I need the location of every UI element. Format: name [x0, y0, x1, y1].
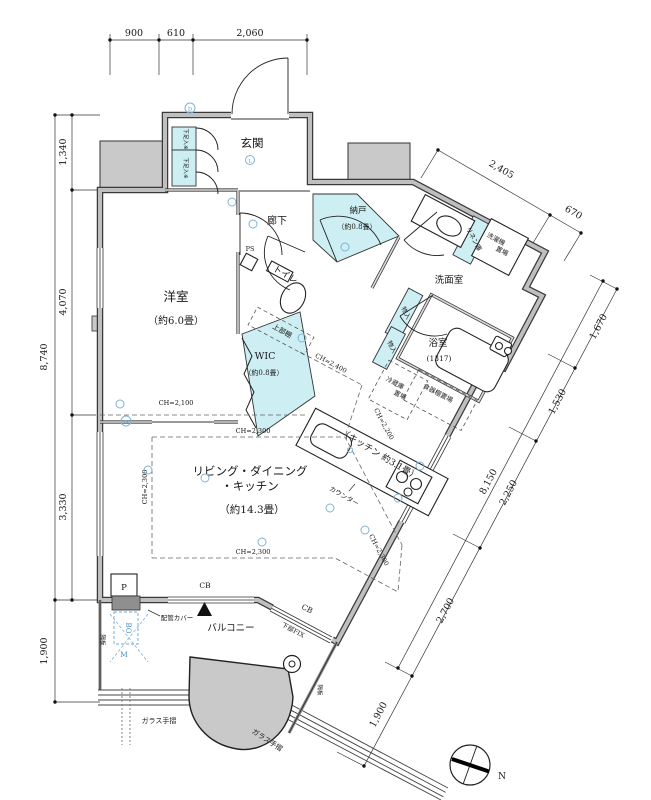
- dim-left-bottom: 1,900: [39, 637, 50, 664]
- label-yoshitsu-size: （約6.0畳）: [148, 314, 204, 327]
- label-shoe-2: 下足入※: [182, 157, 189, 179]
- label-ch-ldk-top: CH=2,300: [236, 427, 271, 435]
- label-yoshitsu: 洋室: [163, 289, 188, 304]
- pipe-cover-leader: [148, 610, 160, 616]
- label-m: M: [120, 650, 128, 659]
- label-p: P: [121, 583, 127, 593]
- dim-left-seg1: 1,340: [58, 138, 69, 165]
- column-block: [100, 141, 163, 190]
- compass-needle: [452, 759, 489, 772]
- pipe-cover-block: [112, 596, 140, 610]
- dim-top-2: 610: [167, 28, 185, 39]
- compass-north: N: [498, 772, 506, 782]
- label-pipe-cover: 配管カバー: [161, 613, 194, 622]
- label-bo: BO: [124, 622, 132, 633]
- burner: [404, 488, 412, 496]
- label-senmen: 洗面室: [435, 274, 464, 286]
- balcony-column: [189, 657, 293, 750]
- label-wic-size: （約0.8畳）: [244, 368, 283, 377]
- label-yokushitsu: 浴室: [428, 337, 447, 349]
- label-nando: 納戸: [349, 205, 366, 216]
- bath-control: [496, 343, 503, 350]
- dim-right-seg3: 2,250: [498, 478, 520, 507]
- label-ps: PS: [246, 245, 255, 253]
- label-rouka: 廊下: [267, 214, 287, 227]
- bath-control: [505, 348, 512, 355]
- balcony-knob: [284, 656, 301, 673]
- label-ldk-size: （約14.3畳）: [219, 503, 284, 516]
- dim-top-3: 2,060: [236, 28, 263, 39]
- label-partition-1: 隔板: [99, 634, 107, 646]
- label-shoe-1: 下足入※: [182, 128, 189, 150]
- dim-topright-1: 2,405: [487, 158, 516, 181]
- label-ch-ldk-left: CH=2,300: [141, 470, 149, 505]
- dim-left-seg3: 3,330: [58, 493, 69, 520]
- label-ldk-2: ・キッチン: [221, 479, 279, 493]
- label-balcony: バルコニー: [207, 623, 254, 634]
- symbol-tv-text: TV: [123, 419, 129, 424]
- label-ch-yoshitsu: CH=2,100: [159, 399, 194, 407]
- dim-left-seg2: 4,070: [58, 288, 69, 315]
- label-glass-rail-1: ガラス手摺: [142, 716, 177, 725]
- dim-top-1: 900: [125, 28, 143, 39]
- symbol-d-text: D: [188, 107, 192, 113]
- label-partition-2: 隔板: [316, 684, 324, 696]
- label-ldk-1: リビング・ダイニング: [193, 464, 308, 478]
- label-nando-size: （約0.8畳）: [337, 222, 376, 231]
- label-wic: WIC: [255, 351, 276, 362]
- label-cb-1: CB: [199, 581, 211, 590]
- label-yokushitsu-size: (1317): [427, 354, 452, 363]
- floor-plan-page: 900 610 2,060 8,740 1,340 4,070 3,330 1,…: [0, 0, 651, 800]
- dim-right-seg1: 1,670: [588, 312, 610, 341]
- label-genkan: 玄関: [241, 136, 264, 150]
- floor-plan-canvas: 900 610 2,060 8,740 1,340 4,070 3,330 1,…: [0, 0, 651, 800]
- dim-right-bottom: 1,900: [368, 700, 390, 729]
- dim-left-total: 8,740: [39, 343, 50, 370]
- dim-topright-2: 670: [563, 204, 584, 223]
- dim-right-seg4: 2,700: [435, 596, 457, 625]
- compass-icon: N: [450, 745, 506, 785]
- label-ch-ldk-bottom: CH=2,300: [236, 548, 271, 556]
- dim-right-seg2: 1,530: [547, 387, 569, 416]
